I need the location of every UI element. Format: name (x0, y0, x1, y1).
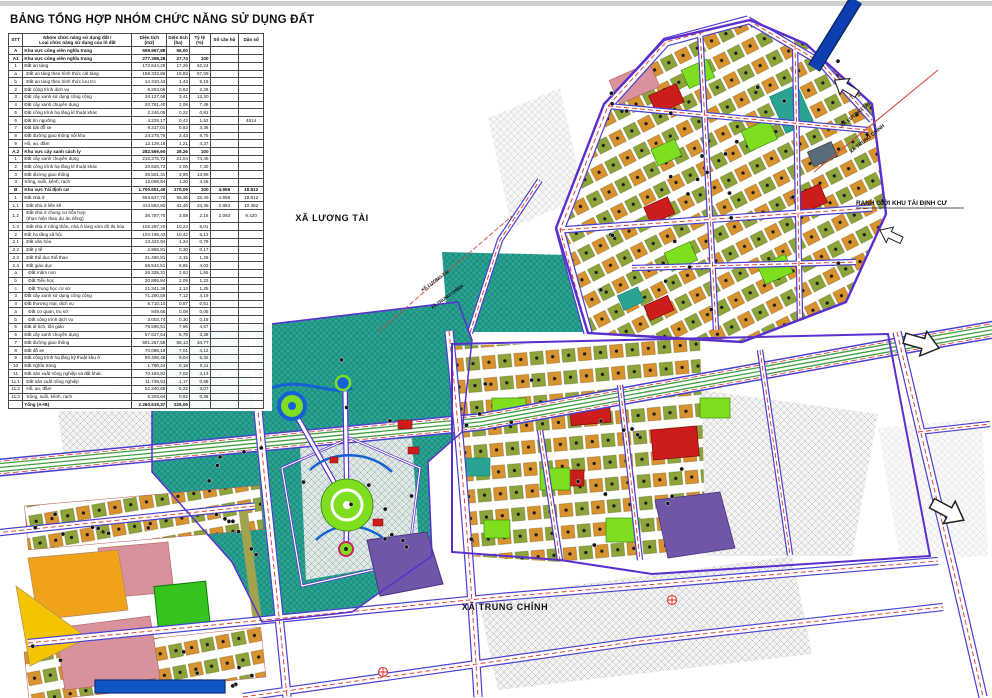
tree-icon (390, 533, 394, 537)
tree-icon (464, 423, 468, 427)
table-row: aĐất cơ quan, trụ sở849,650,080,05 (9, 308, 264, 316)
tree-icon (231, 519, 235, 523)
central-housing-layer (452, 338, 735, 562)
tree-icon (509, 420, 513, 424)
table-row: 1.3Đất nhà ở nông thôn, nhà ở làng xóm đ… (9, 223, 264, 231)
tree-icon (383, 537, 387, 541)
tree-icon (609, 91, 613, 95)
tree-icon (709, 308, 713, 312)
tree-icon (622, 428, 626, 432)
tree-icon (31, 644, 35, 648)
table-row: 6Đất cây xanh chuyên dụng57.627,645,763,… (9, 331, 264, 339)
table-row: 11.1Đất sản xuất nông nghiệp11.739,531,1… (9, 378, 264, 386)
tree-icon (249, 547, 253, 551)
tree-icon (401, 539, 405, 543)
land-use-table-panel: BẢNG TỔNG HỢP NHÓM CHỨC NĂNG SỬ DỤNG ĐẤT… (6, 6, 272, 411)
tree-icon (592, 543, 596, 547)
tree-icon (214, 512, 218, 516)
table-row: 5Đất di tích, tôn giáo79.590,517,964,67 (9, 323, 264, 331)
table-row: bĐất công trình dịch vụ3.003,740,300,18 (9, 316, 264, 324)
table-row: 7Đất đường giao thông591.267,5859,1334,7… (9, 339, 264, 347)
tree-icon (670, 494, 674, 498)
table-row: 2Đất công trình hạ tầng kĩ thuật khác20.… (9, 163, 264, 171)
table-row: 6Đất tín ngưỡng4.229,170,421,524614 (9, 117, 264, 125)
tree-icon (345, 405, 349, 409)
tree-icon (723, 152, 727, 156)
table-row: 11.3Sông, suối, kênh, rạch6.203,640,620,… (9, 393, 264, 401)
column-header: Nhóm chức năng sử dụng đất / Loại chức n… (23, 34, 132, 47)
column-header: Dân số (239, 34, 264, 47)
table-row: 8Đất đỗ xe70.096,197,014,12 (9, 347, 264, 355)
tree-icon (223, 517, 227, 521)
tree-icon (680, 467, 684, 471)
table-header: STTNhóm chức năng sử dụng đất / Loại chứ… (9, 34, 264, 47)
water-bar (95, 680, 225, 693)
tree-icon (576, 479, 580, 483)
label-xa-trung-chinh: XÃ TRUNG CHÍNH (462, 602, 548, 612)
tree-icon (215, 463, 219, 467)
tree-icon (530, 378, 534, 382)
table-row: 1.2Đất nhà ở chung cư hỗn hợp (thực hiện… (9, 209, 264, 222)
table-row: 5Đất công trình hạ tầng kĩ thuật khác2.2… (9, 109, 264, 117)
tree-icon (242, 450, 246, 454)
tree-icon (735, 140, 739, 144)
tree-icon (58, 658, 62, 662)
table-row: 4Đất cây xanh chuyên dụng20.761,402,087,… (9, 101, 264, 109)
table-row: 2Đất hạ tầng xã hội104.198,4310,426,13 (9, 231, 264, 239)
tree-icon (478, 412, 482, 416)
tree-icon (231, 684, 235, 688)
label-xa-luong-tai: XÃ LƯƠNG TÀI (295, 213, 368, 223)
table-row: 2Đất công trình dịch vụ6.263,060,632,26 (9, 86, 264, 94)
tree-icon (599, 419, 603, 423)
table-row: 10Đất nghĩa trang1.790,240,180,11 (9, 362, 264, 370)
tree-icon (756, 85, 760, 89)
tree-icon (237, 665, 241, 669)
table-row: 2.1Đất văn hóa13.422,941,340,79 (9, 238, 264, 246)
table-row: 4Sông, suối, kênh, rạch12.099,841,204,26 (9, 178, 264, 186)
tree-icon (599, 288, 603, 292)
tree-icon (727, 191, 731, 195)
table-row: 8Đất đường giao thông nội khu24.275,792,… (9, 132, 264, 140)
table-row: 11.2Hồ, ao, đầm52.240,655,223,07 (9, 385, 264, 393)
tree-icon (254, 553, 258, 557)
tree-icon (33, 526, 37, 530)
tree-icon (836, 59, 840, 63)
tree-icon (673, 239, 677, 243)
table-row: aĐất mầm non26.335,312,631,55 (9, 269, 264, 277)
table-row: 1Đất cây xanh chuyên dụng210.375,7221,04… (9, 155, 264, 163)
tree-icon (349, 502, 353, 506)
tree-icon (782, 99, 786, 103)
table-row: 1Đất an táng172.644,2917,2662,24 (9, 62, 264, 70)
tree-icon (195, 671, 199, 675)
column-header: STT (9, 34, 23, 47)
table-row: BKhu vực Tái định cư1.700.651,49170,0910… (9, 186, 264, 194)
table-row: cĐất Trung học cơ sở21.341,362,131,25 (9, 285, 264, 293)
table-row: 3Đất cây xanh sử dụng công cộng71.290,59… (9, 292, 264, 300)
table-row: 2.3Đất thể dục thể thao21.490,812,151,26 (9, 254, 264, 262)
tree-icon (695, 177, 699, 181)
tree-icon (90, 525, 94, 529)
tree-icon (603, 492, 607, 496)
table-row: 1Đất nhà ở553.647,7055,3632,494.95619.81… (9, 194, 264, 202)
land-use-table: STTNhóm chức năng sử dụng đất / Loại chứ… (8, 33, 264, 409)
tree-icon (383, 507, 387, 511)
tree-icon (207, 479, 211, 483)
tree-icon (339, 358, 343, 362)
table-row: bĐất Tiểu học20.865,842,091,23 (9, 277, 264, 285)
tree-icon (669, 111, 673, 115)
table-row: 3Đất đường giao thông39.501,313,9513,98 (9, 171, 264, 179)
tree-icon (388, 419, 392, 423)
tree-icon (688, 265, 692, 269)
tree-icon (367, 483, 371, 487)
table-row: 3Đất cây xanh sử dụng công cộng34.127,98… (9, 93, 264, 101)
tree-icon (259, 446, 263, 450)
tree-icon (664, 279, 668, 283)
column-header: Diện tích (ha) (167, 34, 190, 47)
column-header: Diện tích (m2) (132, 34, 167, 47)
tree-icon (301, 480, 305, 484)
tree-icon (218, 455, 222, 459)
tree-icon (686, 192, 690, 196)
table-row: 9Đất công trình hạ tầng kỹ thuật khu ở90… (9, 354, 264, 362)
tree-icon (96, 526, 100, 530)
column-header: Số căn hộ (210, 34, 239, 47)
tree-icon (666, 501, 670, 505)
tree-icon (146, 526, 150, 530)
table-row: 1.1Đất nhà ở liền kề414.562,8041,4624,38… (9, 202, 264, 210)
tree-icon (483, 382, 487, 386)
table-row: 2.4Đất giáo dục68.542,516,854,03 (9, 262, 264, 270)
tree-icon (469, 537, 473, 541)
tree-icon (237, 530, 241, 534)
label-ranh-gioi: RANH GIỚI KHU TÁI ĐỊNH CƯ (856, 198, 948, 207)
tree-icon (630, 427, 634, 431)
tree-icon (53, 512, 57, 516)
tree-icon (625, 109, 629, 113)
table-row: 4Đất thương mại, dịch vụ8.710,100,870,51 (9, 300, 264, 308)
table-row: A.2Khu vực cây xanh cách ly282.569,6028,… (9, 148, 264, 156)
tree-icon (729, 216, 733, 220)
page-title: BẢNG TỔNG HỢP NHÓM CHỨC NĂNG SỬ DỤNG ĐẤT (10, 14, 272, 26)
tree-icon (669, 175, 673, 179)
column-header: Tỷ lệ (%) (189, 34, 210, 47)
table-row: 2.2Đất y tế2.968,810,300,17 (9, 246, 264, 254)
small-pond (336, 376, 350, 390)
table-row: Tổng (A+B)2.260.619,37226,06 (9, 401, 264, 409)
tree-icon (404, 545, 408, 549)
planning-sheet: XÃ LƯƠNG TÀI XÃ TRUNG CHÍNH RANH GIỚI KH… (0, 0, 992, 698)
tree-icon (106, 531, 110, 535)
table-row: 9Hồ, ao, đầm12.129,181,214,37 (9, 140, 264, 148)
tree-icon (705, 170, 709, 174)
table-row: bĐất an táng theo hình thức lưu tro14.31… (9, 78, 264, 86)
tree-icon (791, 195, 795, 199)
table-row: 11Đất sản xuất nông nghiệp và đất khác70… (9, 370, 264, 378)
tree-icon (250, 674, 254, 678)
tree-icon (700, 154, 704, 158)
tree-icon (610, 233, 614, 237)
table-row: 7Đất bãi đỗ xe9.317,010,933,36 (9, 124, 264, 132)
tree-icon (182, 650, 186, 654)
table-row: aĐất an táng theo hình thức cát táng158.… (9, 70, 264, 78)
tree-icon (610, 102, 614, 106)
table-row: A1Khu vực công viên nghĩa trang277.398,2… (9, 55, 264, 63)
table-row: AKhu vực công viên nghĩa trang559.967,88… (9, 47, 264, 55)
tree-icon (227, 519, 231, 523)
tree-icon (636, 433, 640, 437)
tree-icon (836, 261, 840, 265)
tree-icon (61, 532, 65, 536)
tree-icon (409, 494, 413, 498)
